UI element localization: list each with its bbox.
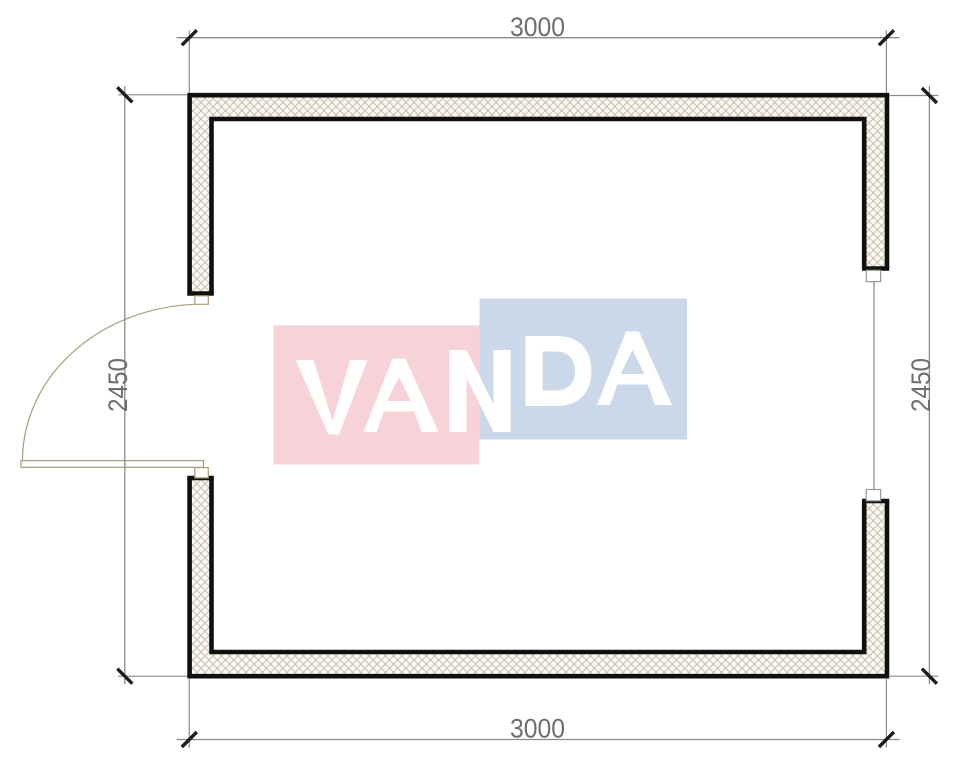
svg-text:3000: 3000	[510, 12, 565, 42]
svg-text:3000: 3000	[510, 714, 565, 744]
svg-text:2450: 2450	[103, 358, 133, 412]
svg-text:2450: 2450	[906, 358, 936, 412]
